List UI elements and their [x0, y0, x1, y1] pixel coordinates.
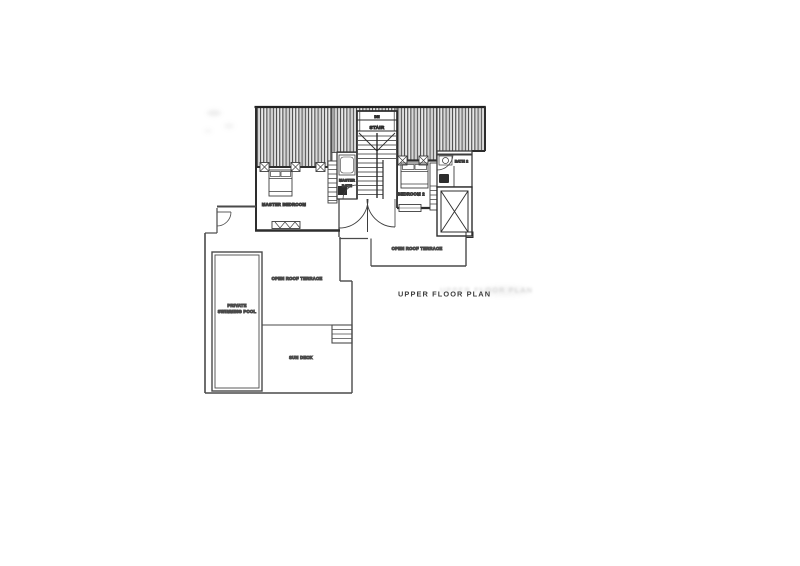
scanned-floor-plan-page: DN STAIR MASTER BEDROOM: [0, 0, 800, 566]
sun-deck-label: SUN DECK: [289, 355, 313, 360]
room-label-master-bedroom: MASTER BEDROOM: [262, 202, 306, 207]
terrace-double-doors: [339, 199, 395, 232]
terrace-upper-label: OPEN ROOF TERRACE: [392, 246, 443, 251]
door-swing-arc: [437, 155, 453, 171]
door-swing-arc: [367, 199, 395, 227]
skylight-void: [437, 187, 473, 238]
bedroom-2: BEDROOM 2: [397, 156, 428, 212]
room-label-master-bath-1: MASTER: [339, 179, 355, 183]
exterior-door: [217, 212, 231, 226]
sink-symbol: [443, 158, 449, 164]
bath-2: BATH 2: [437, 151, 472, 187]
pool-label-2: SWIMMING POOL: [218, 309, 257, 314]
door-swing-arc: [217, 212, 231, 226]
master-bath: MASTER BATH: [337, 152, 357, 199]
stair-direction-label: DN: [374, 115, 380, 119]
room-label-bedroom-2: BEDROOM 2: [397, 192, 425, 197]
master-bedroom: MASTER BEDROOM: [260, 163, 325, 229]
drawing-title: UPPER FLOOR PLAN UPPER FLOOR PLAN: [398, 286, 533, 299]
scan-artifacts: [204, 110, 234, 133]
door-swing-arc: [339, 199, 368, 228]
stair-label: STAIR: [370, 125, 385, 130]
terrace-lower-label: OPEN ROOF TERRACE: [272, 276, 323, 281]
swimming-pool: PRIVATE SWIMMING POOL: [212, 252, 262, 391]
master-closet: [328, 161, 337, 203]
room-label-bath-2: BATH 2: [455, 160, 469, 164]
room-label-master-bath-2: BATH: [342, 184, 353, 188]
open-roof-terrace-upper: OPEN ROOF TERRACE: [339, 238, 466, 267]
south-window-symbol: [272, 222, 300, 229]
open-roof-terrace-lower: OPEN ROOF TERRACE SUN DECK: [205, 207, 352, 394]
stair: DN STAIR: [357, 111, 397, 199]
bedroom-2-closet: [430, 163, 437, 210]
toilet-symbol: [439, 174, 449, 183]
bed-symbol: [401, 163, 428, 188]
upper-floor-plan-drawing: DN STAIR MASTER BEDROOM: [0, 0, 800, 566]
south-window-symbol: [399, 205, 421, 212]
bed-symbol: [269, 170, 292, 196]
drawing-title-text: UPPER FLOOR PLAN: [398, 290, 491, 299]
deck-steps: [332, 325, 352, 343]
pool-label-1: PRIVATE: [227, 303, 246, 308]
